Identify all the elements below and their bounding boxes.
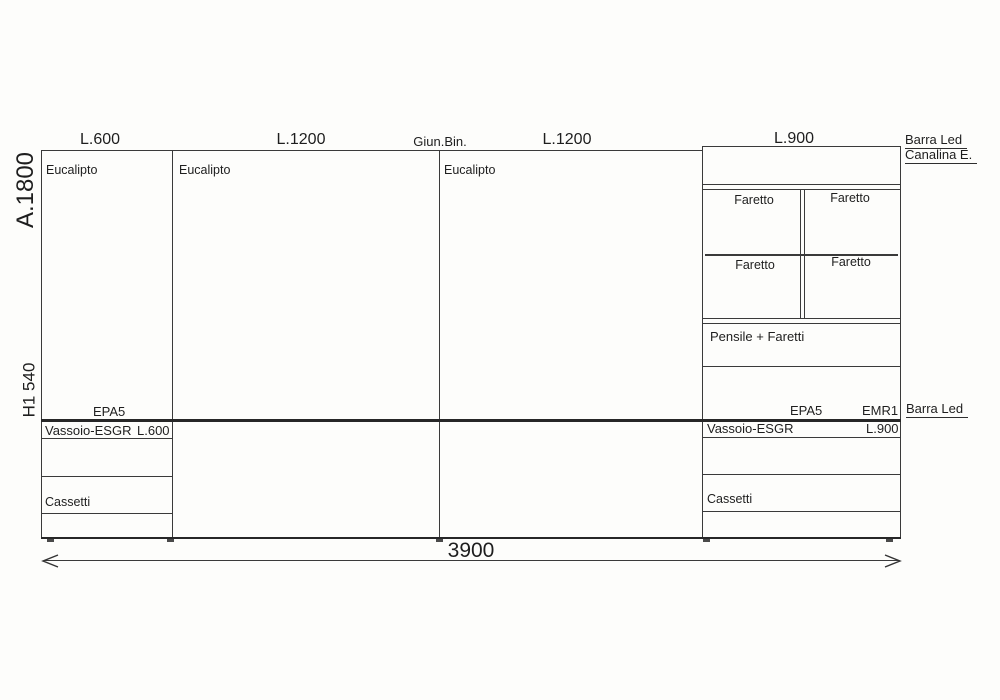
section-divider-3-line bbox=[702, 146, 703, 538]
foot-tick-1 bbox=[47, 539, 54, 542]
barra-led-mid-label: Barra Led bbox=[906, 402, 968, 418]
section-divider-2-line bbox=[439, 151, 440, 538]
section-divider-1-line bbox=[172, 150, 173, 538]
material-label-2: Eucalipto bbox=[179, 164, 230, 178]
dimension-arrow-right-icon bbox=[884, 553, 902, 569]
material-label-1: Eucalipto bbox=[46, 164, 97, 178]
pensile-bottom-line-1 bbox=[702, 318, 901, 319]
material-label-3: Eucalipto bbox=[444, 164, 495, 178]
rail-junction-label: Giun.Bin. bbox=[413, 135, 466, 149]
right-base-line-3 bbox=[702, 511, 901, 512]
foot-tick-2 bbox=[167, 539, 174, 542]
foot-tick-3 bbox=[436, 539, 443, 542]
left-vassoio-size-label: L.600 bbox=[137, 424, 170, 438]
pensile-bottom-line-2 bbox=[702, 323, 901, 324]
right-vassoio-label: Vassoio-ESGR bbox=[707, 422, 793, 436]
left-base-line-2 bbox=[41, 476, 173, 477]
technical-drawing-sheet: L.600 L.1200 Giun.Bin. L.1200 L.900 A.18… bbox=[0, 0, 1000, 700]
section-width-label-l600: L.600 bbox=[80, 131, 120, 149]
pensile-top-edge-line bbox=[702, 146, 901, 147]
pensile-faretti-box-bottom-line bbox=[702, 366, 901, 367]
canalina-label: Canalina E. bbox=[905, 148, 977, 164]
faretto-label-top-left: Faretto bbox=[734, 194, 774, 208]
wardrobe-top-edge-line bbox=[41, 150, 703, 151]
right-base-line-1 bbox=[702, 437, 901, 438]
overall-height-label: A.1800 bbox=[13, 152, 39, 228]
left-cassetti-label: Cassetti bbox=[45, 496, 90, 510]
faretto-label-bottom-right: Faretto bbox=[831, 256, 871, 270]
total-width-dimension-label: 3900 bbox=[448, 539, 495, 562]
epa5-left-code: EPA5 bbox=[93, 405, 125, 419]
h1-height-label: H1 540 bbox=[21, 363, 40, 418]
right-cassetti-label: Cassetti bbox=[707, 493, 752, 507]
emr1-code: EMR1 bbox=[862, 404, 898, 418]
foot-tick-4 bbox=[703, 539, 710, 542]
pensile-faretti-label: Pensile + Faretti bbox=[710, 330, 804, 344]
dimension-line bbox=[44, 560, 898, 561]
section-width-label-l1200-b: L.1200 bbox=[543, 131, 592, 149]
section-width-label-l900: L.900 bbox=[774, 130, 814, 148]
left-base-line-3 bbox=[41, 513, 173, 514]
wardrobe-right-edge-line bbox=[900, 146, 901, 538]
right-vassoio-size-label: L.900 bbox=[866, 422, 899, 436]
epa5-right-code: EPA5 bbox=[790, 404, 822, 418]
foot-tick-5 bbox=[886, 539, 893, 542]
wardrobe-left-edge-line bbox=[41, 150, 42, 538]
section-width-label-l1200-a: L.1200 bbox=[277, 131, 326, 149]
dimension-arrow-left-icon bbox=[41, 553, 59, 569]
faretto-label-top-right: Faretto bbox=[830, 192, 870, 206]
faretto-label-bottom-left: Faretto bbox=[735, 259, 775, 273]
left-vassoio-label: Vassoio-ESGR bbox=[45, 424, 131, 438]
right-base-line-2 bbox=[702, 474, 901, 475]
pensile-panel-line-1 bbox=[702, 184, 901, 185]
